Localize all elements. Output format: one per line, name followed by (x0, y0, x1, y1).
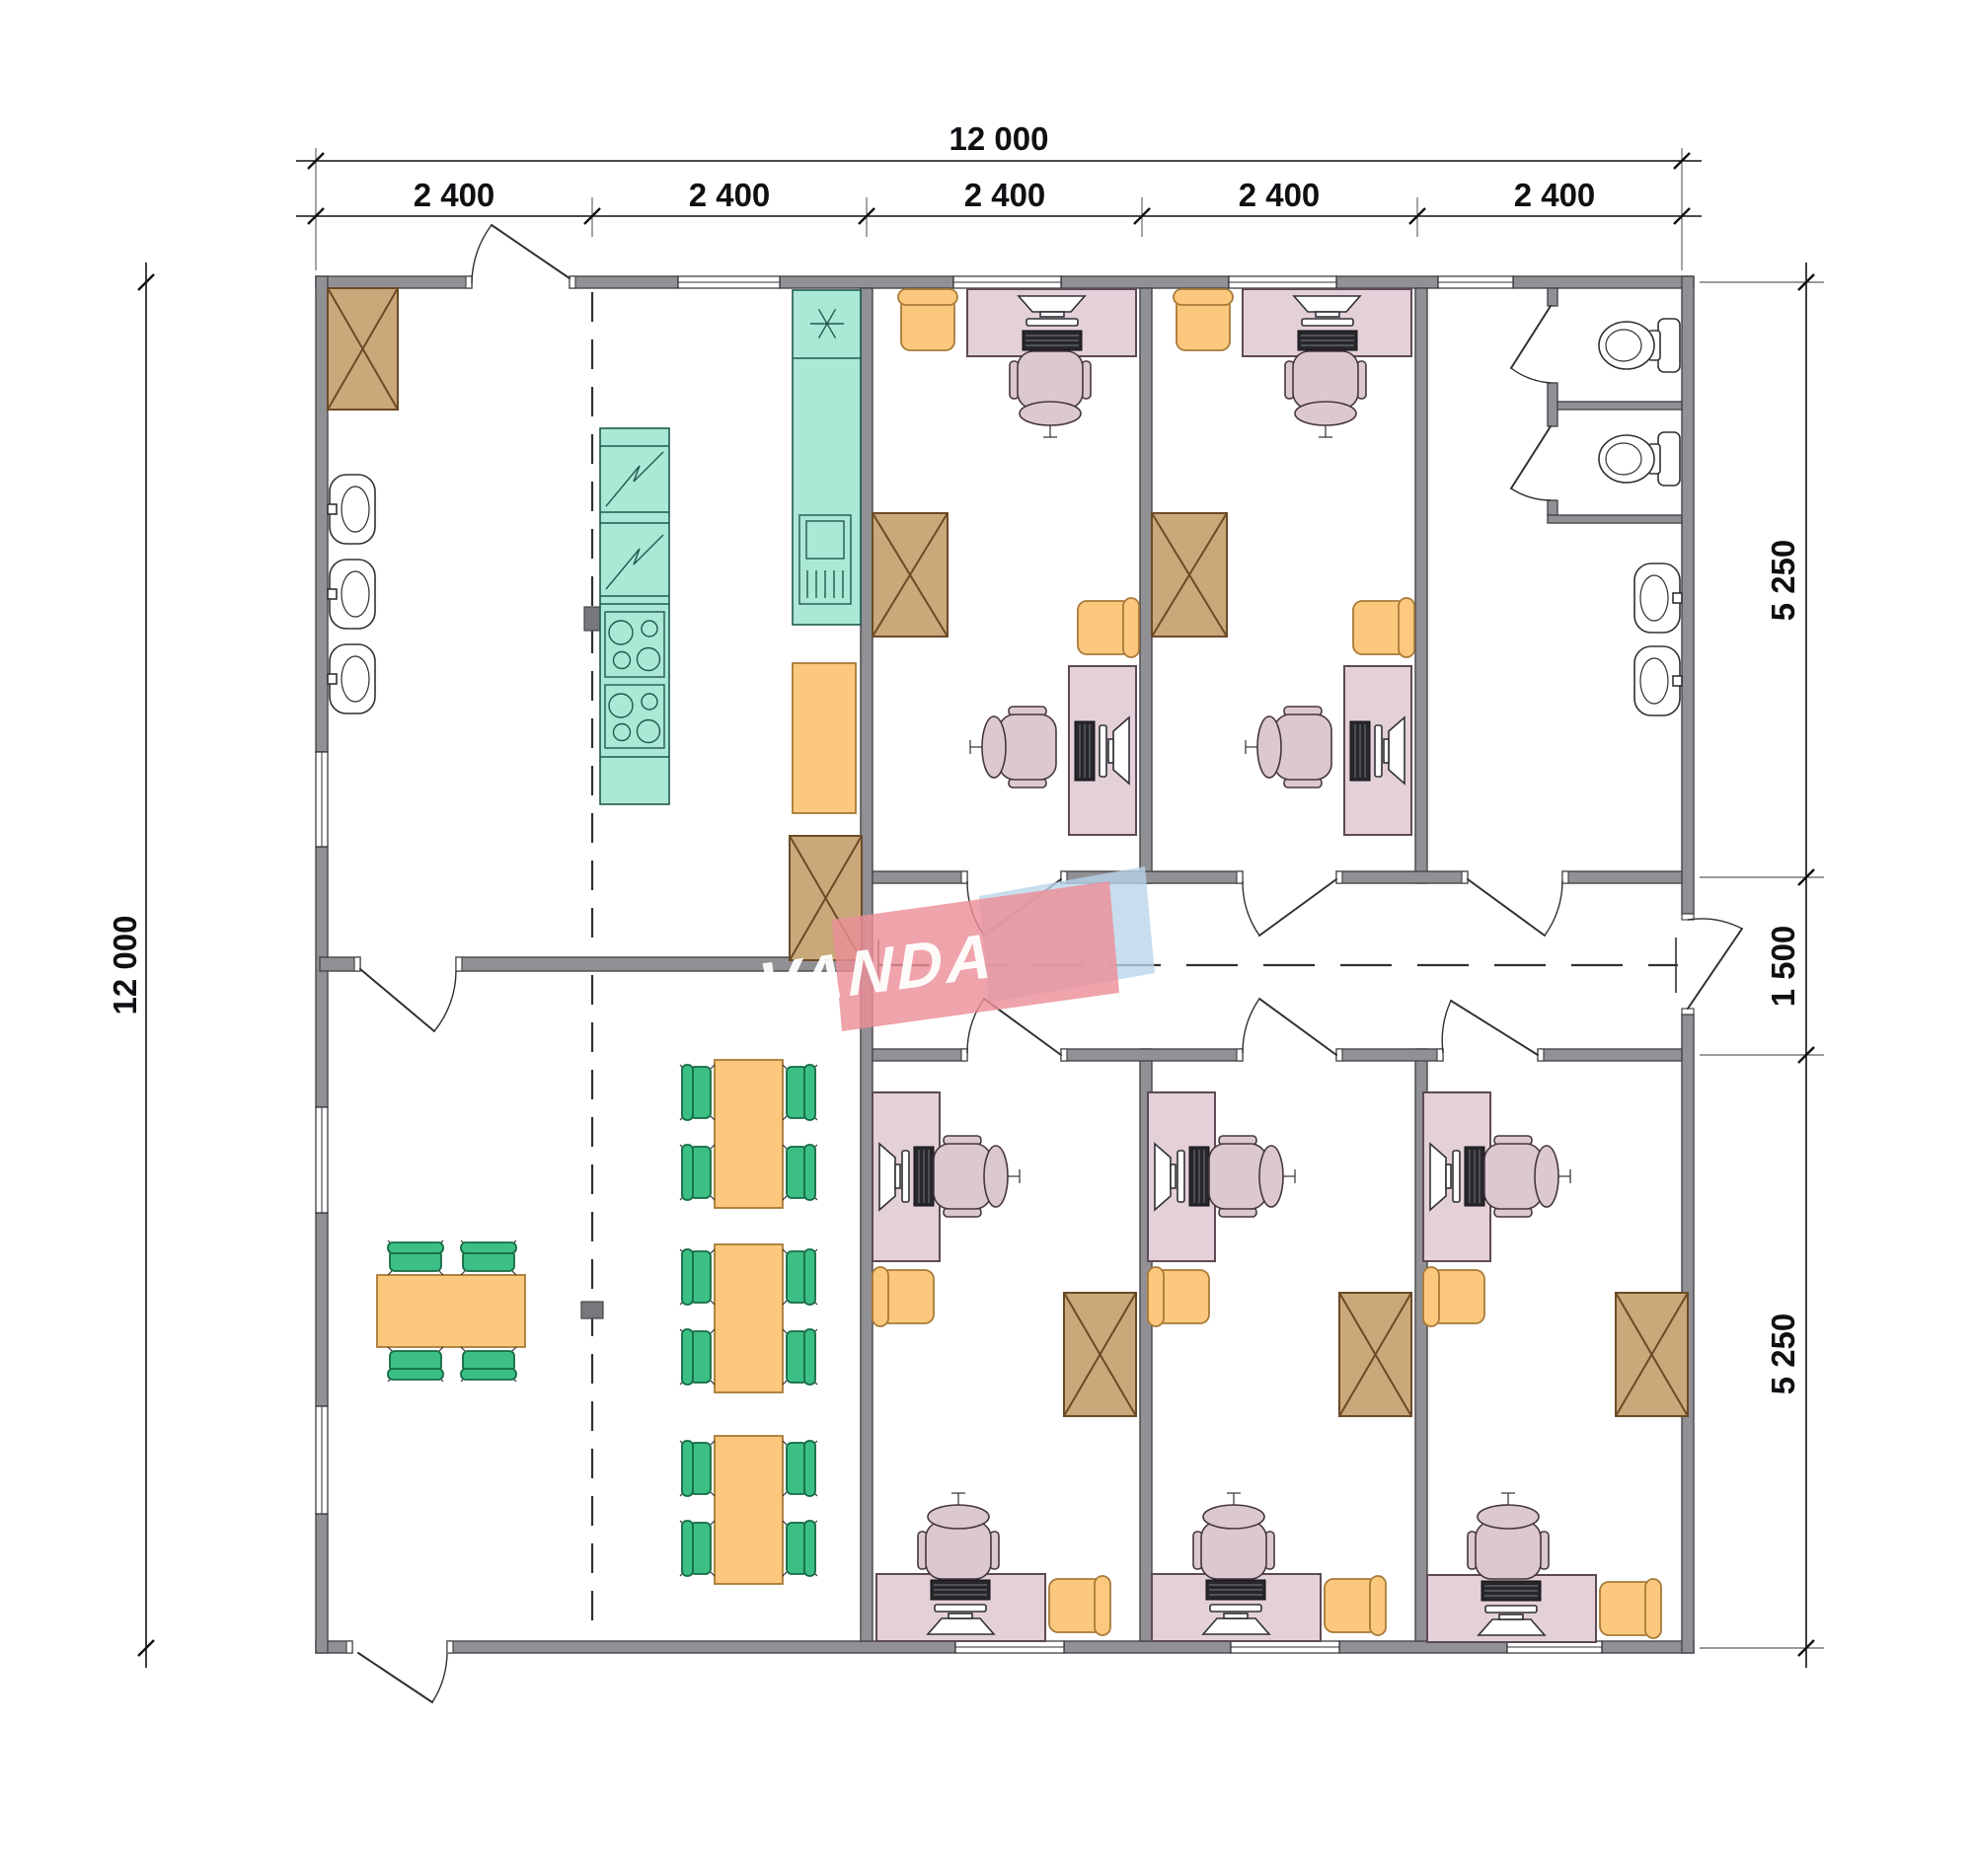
room-office-a (873, 289, 1139, 835)
kitchen-table (793, 663, 856, 813)
dim-label-module-4: 2 400 (1239, 177, 1321, 213)
dim-label-module-1: 2 400 (414, 177, 495, 213)
office-chair (918, 1493, 999, 1579)
visitor-chair (1148, 1267, 1209, 1326)
storage-cabinet (873, 513, 948, 637)
office-e-door (1437, 1001, 1544, 1061)
dining-chair (783, 1521, 817, 1576)
dining-chair (680, 1521, 715, 1576)
dining-chair (680, 1145, 715, 1200)
desk-workstation (1344, 666, 1411, 835)
dim-label-module-5: 2 400 (1514, 177, 1596, 213)
dim-label-right-bottom: 5 250 (1765, 1313, 1801, 1395)
window (1231, 1641, 1339, 1653)
room-office-b (1152, 289, 1414, 835)
dining-chair (783, 1249, 817, 1305)
visitor-chair (873, 1267, 934, 1326)
dining-kitchen-door (354, 957, 462, 1031)
dining-table (715, 1244, 783, 1392)
room-dining (377, 1060, 817, 1584)
window (1229, 276, 1336, 288)
dining-chair (388, 1240, 443, 1275)
desk-workstation (876, 1574, 1045, 1641)
dining-chair (680, 1441, 715, 1496)
window (678, 276, 780, 288)
window (316, 1107, 328, 1213)
floor-plan-page: 12 000 2 400 2 400 2 400 2 400 2 400 12 … (0, 0, 1974, 1876)
floor-plan-drawing: 12 000 2 400 2 400 2 400 2 400 2 400 12 … (0, 0, 1974, 1876)
dim-label-module-2: 2 400 (689, 177, 771, 213)
dining-chair (783, 1441, 817, 1496)
washbasin (328, 644, 375, 713)
desk-workstation (1069, 666, 1136, 835)
desk-workstation (1243, 289, 1411, 356)
window (1438, 276, 1513, 288)
dining-chair (680, 1065, 715, 1120)
room-office-d (1148, 1092, 1411, 1641)
washbasin (1634, 563, 1682, 633)
dining-chair (680, 1249, 715, 1305)
washroom-door (1462, 871, 1568, 936)
office-chair (970, 707, 1056, 788)
dining-chair (388, 1347, 443, 1382)
visitor-chair (1325, 1576, 1386, 1635)
washbasin (328, 475, 375, 544)
desk-workstation (1423, 1092, 1490, 1261)
dim-label-overall-height: 12 000 (107, 916, 143, 1015)
storage-cabinet (1616, 1293, 1688, 1416)
visitor-chair (898, 289, 957, 350)
dimension-top-modules: 2 400 2 400 2 400 2 400 2 400 (296, 177, 1702, 237)
window (955, 1641, 1064, 1653)
dining-exit-door (346, 1641, 453, 1702)
window (316, 752, 328, 847)
visitor-chair (1423, 1267, 1484, 1326)
storage-cabinet (1339, 1293, 1411, 1416)
dim-label-right-middle: 1 500 (1765, 926, 1801, 1008)
desk-workstation (1148, 1092, 1215, 1261)
desk-workstation (1427, 1575, 1596, 1642)
office-chair (934, 1136, 1020, 1217)
toilet (1599, 319, 1680, 372)
wc-stall-door-2 (1511, 426, 1551, 500)
washbasin (328, 560, 375, 629)
window (316, 1406, 328, 1514)
corridor-exit-door (1682, 914, 1742, 1014)
office-b-door (1237, 871, 1342, 936)
office-chair (1193, 1493, 1274, 1579)
visitor-chair (1078, 598, 1139, 657)
visitor-chair (1174, 289, 1233, 350)
toilet (1599, 432, 1680, 486)
desk-workstation (967, 289, 1136, 356)
dining-chair (783, 1329, 817, 1385)
dining-chair (680, 1329, 715, 1385)
office-chair (1285, 351, 1366, 437)
dining-chair (461, 1240, 516, 1275)
kitchen-unit-left (600, 428, 669, 804)
dimension-left: 12 000 (107, 263, 154, 1668)
office-chair (1209, 1136, 1295, 1217)
storage-cabinet (1064, 1293, 1136, 1416)
room-office-e (1423, 1092, 1688, 1642)
column (584, 607, 600, 631)
dim-label-module-3: 2 400 (964, 177, 1046, 213)
desk-workstation (1152, 1574, 1321, 1641)
kitchen-unit-right (793, 290, 861, 625)
dim-label-right-top: 5 250 (1765, 540, 1801, 622)
dining-table (715, 1060, 783, 1208)
dim-label-overall-width: 12 000 (949, 120, 1049, 157)
room-kitchen (328, 288, 862, 960)
window (953, 276, 1061, 288)
room-office-c (873, 1092, 1136, 1641)
office-chair (1010, 351, 1091, 437)
office-chair (1246, 707, 1331, 788)
column (581, 1302, 603, 1318)
dining-chair (461, 1347, 516, 1382)
storage-cabinet (1152, 513, 1227, 637)
office-d-door (1237, 999, 1342, 1061)
washbasin (1634, 646, 1682, 715)
dining-table (715, 1436, 783, 1584)
dining-chair (783, 1145, 817, 1200)
office-chair (1484, 1136, 1570, 1217)
entrance-door (466, 225, 575, 288)
dining-chair (783, 1065, 817, 1120)
visitor-chair (1353, 598, 1414, 657)
office-chair (1468, 1493, 1549, 1579)
dining-table (377, 1275, 525, 1347)
visitor-chair (1600, 1579, 1661, 1638)
storage-cabinet (328, 288, 398, 410)
wc-stall-door-1 (1511, 306, 1551, 383)
desk-workstation (873, 1092, 940, 1261)
visitor-chair (1049, 1576, 1110, 1635)
